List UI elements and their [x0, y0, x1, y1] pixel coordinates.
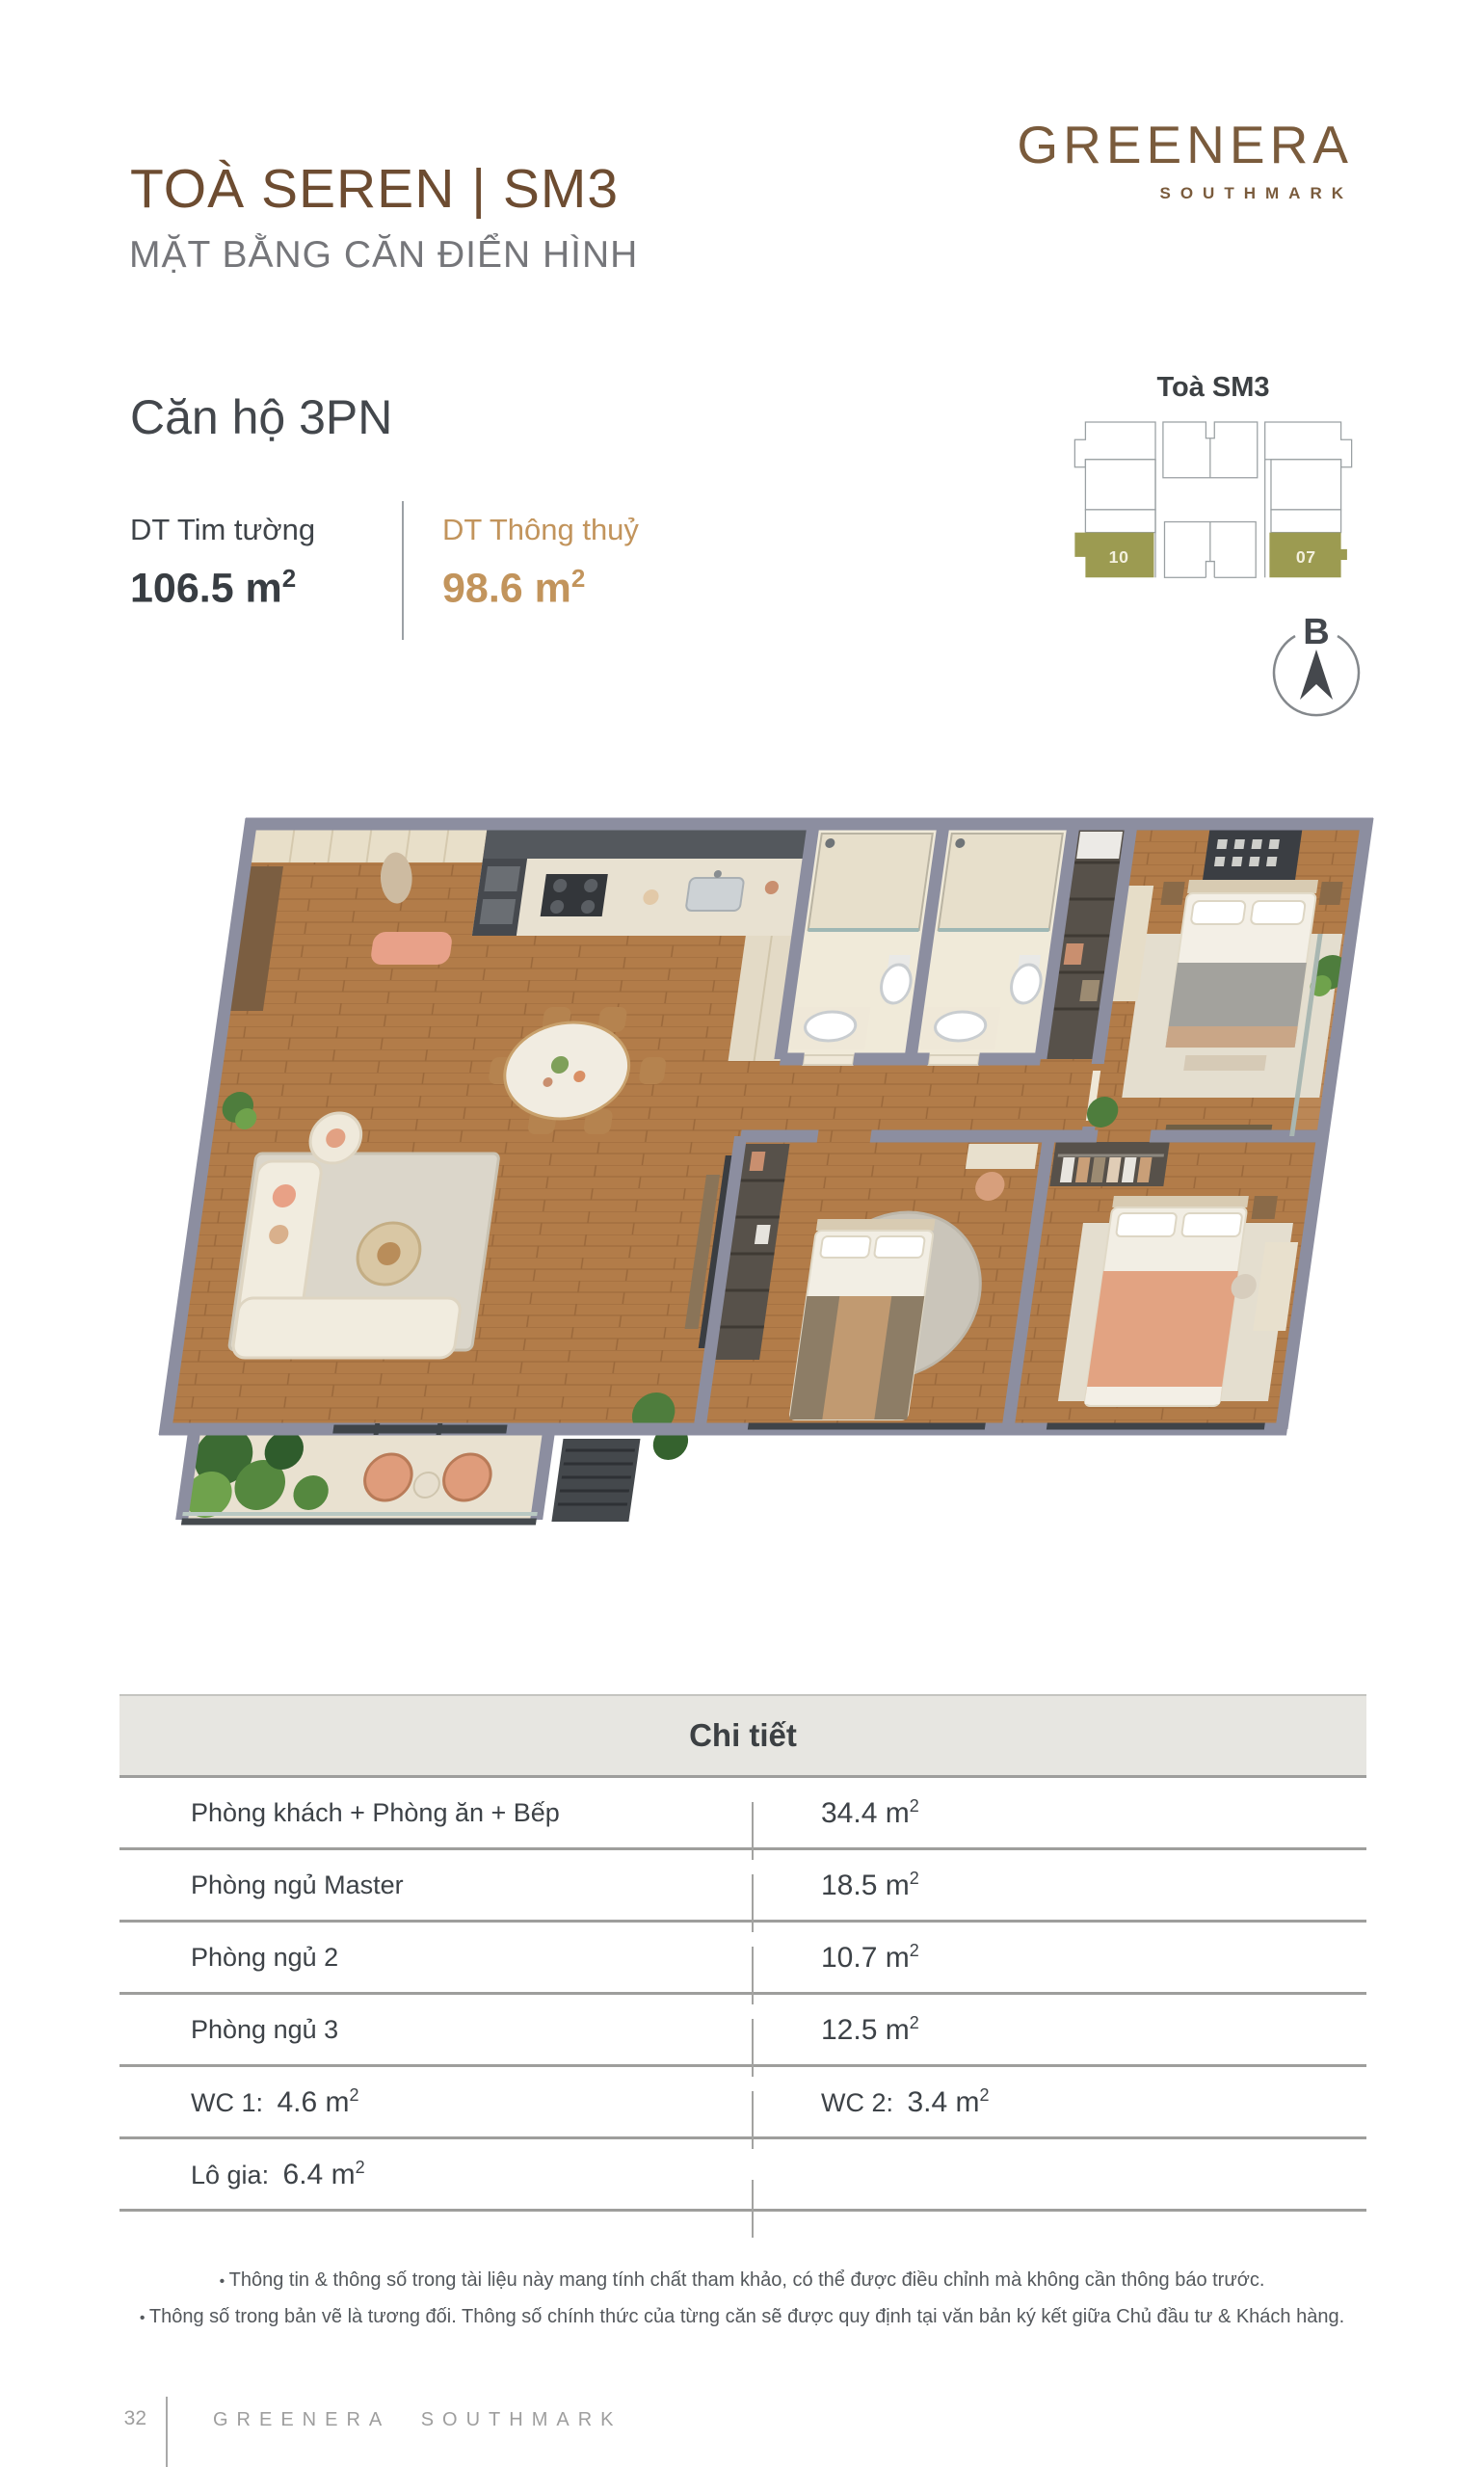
brand-logo-sub: SOUTHMARK	[1017, 184, 1353, 203]
row-value: 10.7 m2	[821, 1942, 919, 1974]
key-plan-title: Toà SM3	[1063, 372, 1364, 404]
footer-brand: GREENERA SOUTHMARK	[213, 2409, 622, 2431]
page-number: 32	[93, 2407, 146, 2430]
row-label: WC 1:	[191, 2088, 263, 2117]
row-value: 34.4 m2	[821, 1797, 919, 1829]
row-label: Phòng ngủ 3	[191, 2015, 338, 2044]
detail-table: Chi tiết Phòng khách + Phòng ăn + Bếp 34…	[119, 1694, 1366, 2212]
north-arrow-icon	[1300, 650, 1333, 700]
row-value: 4.6 m2	[277, 2086, 358, 2118]
louvre-screen	[551, 1439, 640, 1522]
area-tim-tuong-label: DT Tim tường	[130, 513, 315, 546]
table-row: WC 1: 4.6 m2 WC 2: 3.4 m2	[119, 2067, 1366, 2139]
row-label: Phòng ngủ 2	[191, 1943, 338, 1972]
area-thong-thuy: DT Thông thuỷ 98.6 m2	[442, 513, 639, 612]
page-title: TOÀ SEREN | SM3	[130, 157, 619, 221]
unit-number-10: 10	[1109, 547, 1129, 567]
page-subtitle: MẶT BẰNG CĂN ĐIỂN HÌNH	[129, 234, 638, 277]
area-thong-thuy-label: DT Thông thuỷ	[442, 513, 639, 546]
table-row: Phòng khách + Phòng ăn + Bếp 34.4 m2	[119, 1778, 1366, 1850]
row-label: Phòng ngủ Master	[191, 1870, 404, 1899]
disclaimer-notes: Thông tin & thông số trong tài liệu này …	[0, 2263, 1484, 2336]
area-tim-tuong-value: 106.5 m2	[130, 564, 315, 612]
row-value: 12.5 m2	[821, 2014, 919, 2046]
area-thong-thuy-value: 98.6 m2	[442, 564, 639, 612]
floor-plan-render	[125, 814, 1417, 1556]
brand-logo: GREENERA SOUTHMARK	[1017, 114, 1353, 203]
row-value: 18.5 m2	[821, 1870, 919, 1901]
row-label: Phòng khách + Phòng ăn + Bếp	[191, 1798, 560, 1827]
area-tim-tuong: DT Tim tường 106.5 m2	[130, 513, 315, 612]
row-value: 3.4 m2	[907, 2086, 989, 2118]
row-label: WC 2:	[821, 2088, 893, 2117]
table-row: Phòng ngủ 2 10.7 m2	[119, 1923, 1366, 1995]
area-divider	[402, 501, 404, 640]
brand-logo-name: GREENERA	[1017, 114, 1353, 175]
detail-table-header: Chi tiết	[119, 1694, 1366, 1778]
note-line: Thông tin & thông số trong tài liệu này …	[0, 2263, 1484, 2299]
unit-number-07: 07	[1296, 547, 1316, 567]
brochure-page: TOÀ SEREN | SM3 MẶT BẰNG CĂN ĐIỂN HÌNH G…	[0, 0, 1484, 2467]
apartment-type: Căn hộ 3PN	[130, 389, 392, 445]
note-line: Thông số trong bản vẽ là tương đối. Thôn…	[0, 2299, 1484, 2336]
table-row: Lô gia: 6.4 m2	[119, 2139, 1366, 2212]
footer-divider	[166, 2397, 168, 2467]
compass-north-letter: B	[1303, 613, 1329, 652]
compass-icon: B	[1268, 613, 1365, 719]
table-row: Phòng ngủ 3 12.5 m2	[119, 1995, 1366, 2067]
key-plan-diagram: 10 07	[1058, 410, 1368, 595]
table-row: Phòng ngủ Master 18.5 m2	[119, 1850, 1366, 1923]
row-value: 6.4 m2	[283, 2159, 365, 2190]
row-label: Lô gia:	[191, 2161, 269, 2189]
